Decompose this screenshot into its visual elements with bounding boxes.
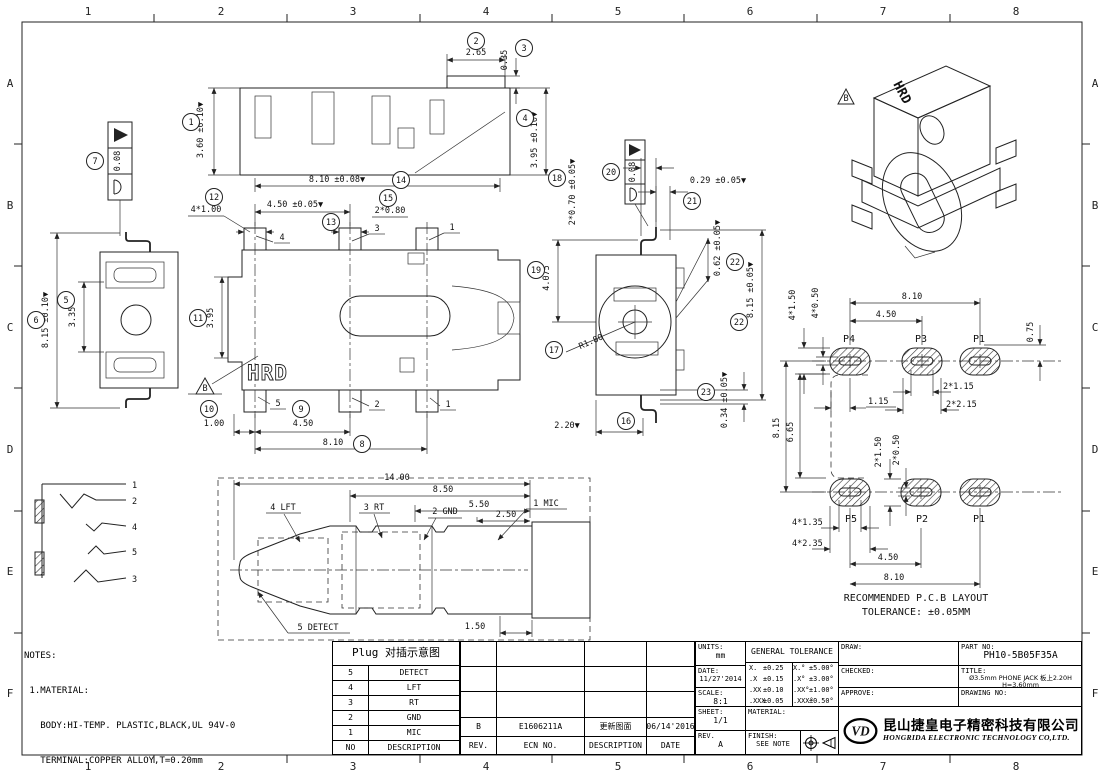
schematic-pin: 2 [132,497,137,507]
svg-text:4.50: 4.50 [876,310,896,320]
isometric-view: HRD B [838,66,1016,265]
profile-symbol-icon [114,180,121,194]
svg-text:6: 6 [33,316,38,326]
svg-text:0.75: 0.75 [1026,322,1036,342]
svg-text:1: 1 [445,400,450,410]
svg-text:C: C [1092,321,1099,334]
svg-text:14: 14 [396,176,406,186]
svg-text:2*1.15: 2*1.15 [943,382,974,392]
svg-text:F: F [1092,687,1099,700]
svg-text:8: 8 [1013,5,1020,18]
svg-text:12: 12 [209,193,219,203]
pcb-layout: P4 P3 P1 P5 P2 P1 8.10 4.50 0.75 4*1.50 … [772,288,1062,618]
partno-cell: PART NO:PH10-5B05F35A [959,642,1082,666]
finish-cell: FINISH:SEE NOTE [746,731,801,755]
svg-text:2: 2 [374,400,379,410]
svg-text:5: 5 [275,399,280,409]
svg-text:1.00: 1.00 [204,419,224,429]
svg-text:7: 7 [880,5,887,18]
pcb-pads [830,348,1000,506]
svg-text:0.34 ±0.05▼: 0.34 ±0.05▼ [720,371,730,428]
scale-cell: SCALE:8:1 [696,688,746,707]
svg-text:VD: VD [851,723,870,738]
svg-text:19: 19 [531,266,541,276]
svg-text:4*1.00: 4*1.00 [191,205,222,215]
pad-label: P2 [916,514,928,525]
svg-text:5: 5 [615,760,622,773]
svg-text:4.50 ±0.05▼: 4.50 ±0.05▼ [267,200,324,210]
svg-text:23: 23 [701,388,711,398]
svg-text:D: D [7,443,14,456]
side-view: 3.60 ±0.10▼ 1 2.65 2 0.35 3 3.95 ±0.10▼ … [183,33,551,193]
pin-function-table: Plug 对插示意图 5 DETECT 4 LFT 3 RT 2 GND 1 M… [332,641,460,755]
company-block: VD 昆山捷皇电子精密科技有限公司 HONGRIDA ELECTRONIC TE… [839,707,1082,755]
svg-text:22: 22 [734,318,744,328]
drawingno-cell: DRAWING NO: [959,688,1082,707]
balloon-number: 1 [188,118,193,128]
plug-mating-section: 14.00 8.50 5.50 2.50 1.50 4 LFT 3 RT 2 G… [218,473,590,640]
svg-text:2*1.50: 2*1.50 [874,437,884,468]
title-cell: TITLE:Ø3.5mm PHONE JACK 板上2.20H H=3.60mm [959,666,1082,688]
tolerance-table: X.±0.25X.°±5.00° .X±0.15.X°±3.00° .XX±0.… [746,663,839,707]
svg-text:2*0.80: 2*0.80 [375,206,406,216]
svg-text:0.29 ±0.05▼: 0.29 ±0.05▼ [690,176,747,186]
svg-text:4: 4 [483,760,490,773]
schematic-pin: 1 [132,481,137,491]
svg-text:2*2.15: 2*2.15 [946,400,977,410]
pad-label: P1 [973,514,985,525]
svg-text:7: 7 [92,157,97,167]
front-main-view: HRD B 4*1.00 12 4.50 ±0.05▼ 13 15 2*0.80… [188,189,520,455]
svg-text:8.15 ±0.05▼: 8.15 ±0.05▼ [746,261,756,318]
svg-text:4.50: 4.50 [878,553,898,563]
svg-text:5.50: 5.50 [469,500,489,510]
notes-block: NOTES: 1.MATERIAL: BODY:HI-TEMP. PLASTIC… [24,628,311,776]
tolerance-header: GENERAL TOLERANCE [746,642,839,663]
svg-text:3: 3 [350,760,357,773]
svg-text:1.15: 1.15 [868,397,888,407]
svg-text:0.08: 0.08 [113,151,123,171]
company-name-en: HONGRIDA ELECTRONIC TECHNOLOGY CO,LTD. [883,734,1079,743]
svg-text:2: 2 [218,5,225,18]
svg-text:2.20▼: 2.20▼ [554,421,580,431]
svg-text:B: B [1092,199,1099,212]
company-name-cn: 昆山捷皇电子精密科技有限公司 [883,719,1079,735]
section-view: 2*0.70 ±0.05▼ 18 4.075 19 0.08 20 0.29 ±… [528,140,767,436]
pin-table-header: Plug 对插示意图 [333,642,459,666]
contact-label: 2 GND [432,507,458,517]
pcb-caption: RECOMMENDED P.C.B LAYOUT [844,593,989,604]
svg-text:4*1.35: 4*1.35 [792,518,823,528]
note-line: TERMINAL:COPPER ALLOY,T=0.20mm [24,756,311,768]
svg-text:8.10: 8.10 [884,573,904,583]
svg-text:4: 4 [483,5,490,18]
brand-mark: HRD [247,361,288,385]
contact-label: 3 RT [364,503,384,513]
svg-text:22: 22 [730,258,740,268]
svg-text:2*0.50: 2*0.50 [892,435,902,466]
svg-text:2.50: 2.50 [496,510,516,520]
svg-text:5: 5 [63,296,68,306]
svg-text:11: 11 [193,314,203,324]
svg-text:13: 13 [326,218,336,228]
svg-text:3.95: 3.95 [206,308,216,328]
svg-text:0.35: 0.35 [500,50,510,70]
svg-text:A: A [7,77,14,90]
svg-text:R1.80: R1.80 [577,332,604,352]
pad-label: P5 [845,514,857,525]
svg-text:20: 20 [606,168,616,178]
svg-text:B: B [843,94,848,104]
svg-text:17: 17 [549,346,559,356]
company-logo: VD [842,715,879,747]
qc-triangle-icon [114,128,128,142]
pad-label: P1 [973,334,985,345]
pad-label: P3 [915,334,927,345]
datum-b-flag: B [838,89,854,104]
svg-text:6.65: 6.65 [786,422,796,442]
svg-text:0.62 ±0.05▼: 0.62 ±0.05▼ [713,219,723,276]
pad-label: P4 [843,334,855,345]
svg-text:C: C [7,321,14,334]
title-block: UNITS:mm DATE:11/27'2014 SCALE:8:1 SHEET… [695,641,1082,755]
svg-text:4*0.50: 4*0.50 [811,288,821,319]
svg-text:B: B [7,199,14,212]
svg-text:3: 3 [521,44,526,54]
svg-text:E: E [1092,565,1099,578]
schematic-pin: 4 [132,523,137,533]
svg-text:4*2.35: 4*2.35 [792,539,823,549]
svg-text:2: 2 [473,37,478,47]
material-cell: MATERIAL: [746,707,839,731]
svg-text:3.35: 3.35 [68,307,78,327]
svg-text:F: F [7,687,14,700]
left-end-view: 8.15 ±0.10▼ 6 3.35 5 [28,232,179,408]
schematic-pin: 3 [132,575,137,585]
note-line: 1.MATERIAL: [24,686,311,698]
svg-text:1.50: 1.50 [465,622,485,632]
svg-text:3: 3 [350,5,357,18]
svg-text:16: 16 [621,417,631,427]
svg-text:5: 5 [615,5,622,18]
revision-table: B E1606211A 更新图面 06/14'2016 REV. ECN NO.… [460,641,695,755]
svg-text:D: D [1092,443,1099,456]
svg-text:21: 21 [687,197,697,207]
engineering-drawing-sheet: 12345678 12345678 ABCDEF ABCDEF 3.60 ±0.… [0,0,1104,776]
svg-text:4: 4 [279,233,284,243]
svg-text:7: 7 [880,760,887,773]
svg-text:18: 18 [552,174,562,184]
pcb-caption: TOLERANCE: ±0.05MM [862,607,970,618]
svg-text:3: 3 [374,224,379,234]
contact-label: 4 LFT [270,503,296,513]
svg-text:B: B [202,384,207,394]
svg-text:1: 1 [85,5,92,18]
svg-text:6: 6 [747,5,754,18]
rev-cell: REV.A [696,731,746,755]
approve-cell: APPROVE: [839,688,959,707]
profile-symbol-icon [630,188,637,201]
svg-text:8.10: 8.10 [323,438,343,448]
svg-text:0.08: 0.08 [628,162,638,182]
sheet-cell: SHEET:1/1 [696,707,746,731]
brand-mark: HRD [889,79,913,107]
svg-text:4.50: 4.50 [293,419,313,429]
svg-text:A: A [1092,77,1099,90]
svg-text:6: 6 [747,760,754,773]
units-cell: UNITS:mm [696,642,746,666]
contact-label: 1 MIC [533,499,559,509]
qc-triangle-icon [629,144,641,156]
schematic-pin: 5 [132,548,137,558]
svg-text:4*1.50: 4*1.50 [788,290,798,321]
svg-text:8.50: 8.50 [433,485,453,495]
svg-text:1: 1 [449,223,454,233]
svg-text:2*0.70 ±0.05▼: 2*0.70 ±0.05▼ [568,158,578,225]
svg-text:8.15: 8.15 [772,418,782,438]
note-line: NOTES: [24,651,311,663]
terminal-schematic: 1 2 4 5 3 [35,481,137,585]
svg-text:14.00: 14.00 [384,473,410,483]
svg-text:15: 15 [383,194,393,204]
projection-symbol-cell [801,731,839,755]
svg-text:8.10 ±0.08▼: 8.10 ±0.08▼ [309,175,366,185]
dim-text: 3.60 ±0.10▼ [196,101,206,158]
svg-text:8: 8 [359,440,364,450]
svg-text:8: 8 [1013,760,1020,773]
gdt-frame-7: 0.08 7 [87,122,133,236]
draw-cell: DRAW: [839,642,959,666]
svg-text:8.10: 8.10 [902,292,922,302]
date-cell: DATE:11/27'2014 [696,666,746,688]
svg-text:10: 10 [204,405,214,415]
note-line: BODY:HI-TEMP. PLASTIC,BLACK,UL 94V-0 [24,721,311,733]
svg-text:4: 4 [522,114,527,124]
checked-cell: CHECKED: [839,666,959,688]
svg-text:E: E [7,565,14,578]
third-angle-projection-icon [802,732,838,754]
svg-text:9: 9 [298,405,303,415]
rev-entry: B [461,718,497,737]
